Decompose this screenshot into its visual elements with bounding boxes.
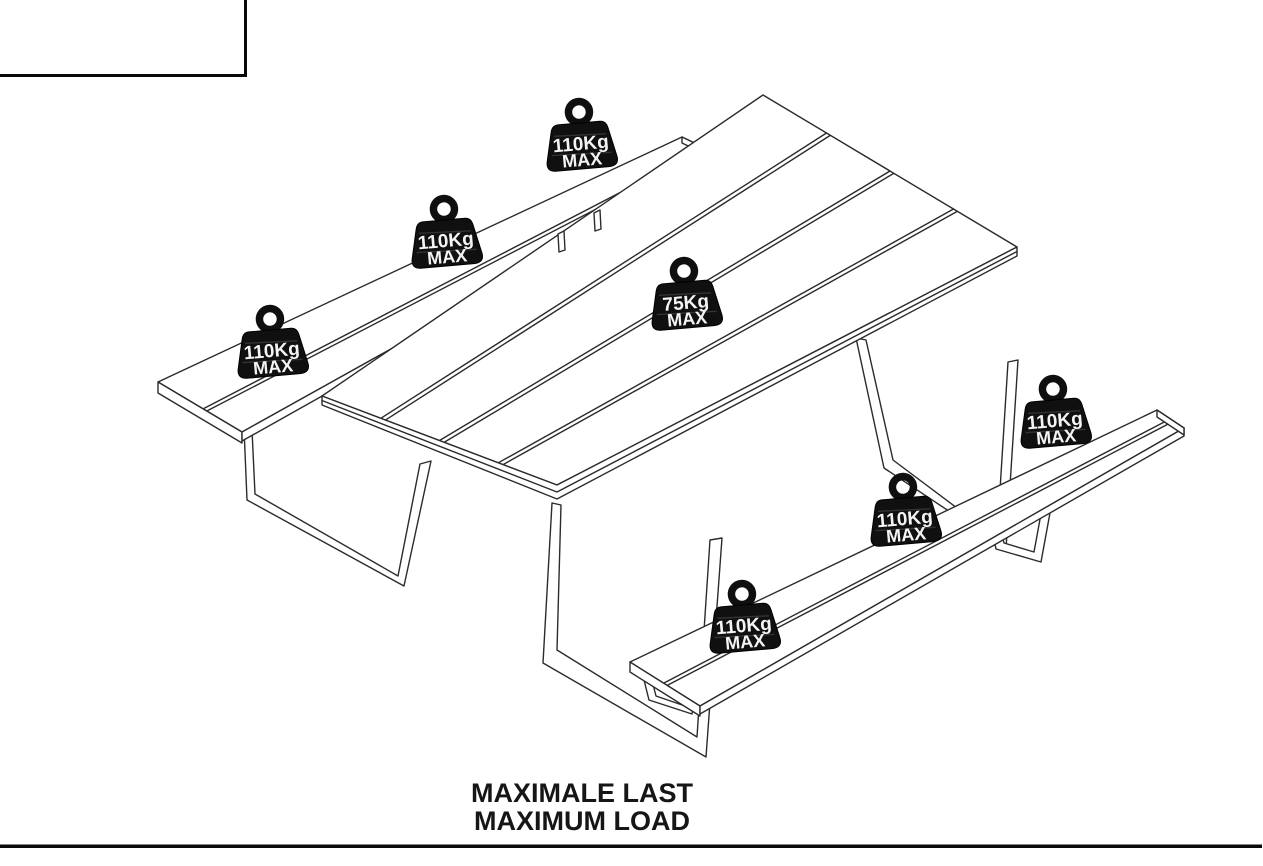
weight-ring-icon xyxy=(892,476,915,499)
weight-ring-icon xyxy=(731,583,754,606)
table-front-leg xyxy=(543,503,722,757)
right-bench-front-band xyxy=(700,428,1184,714)
weight-max-label: MAX xyxy=(561,148,603,171)
max-weight-badge-left-bench-outer: 110Kg MAX xyxy=(542,99,618,173)
max-weight-badge-right-bench-middle: 110Kg MAX xyxy=(866,474,942,548)
weight-ring-icon xyxy=(433,198,456,221)
left-bench-leg xyxy=(244,428,431,586)
title-block-corner xyxy=(0,0,247,76)
weight-ring-icon xyxy=(1042,378,1065,401)
weight-ring-icon xyxy=(568,101,591,124)
weight-max-label: MAX xyxy=(724,630,766,653)
caption-line-1: MAXIMALE LAST xyxy=(471,778,693,808)
weight-max-label: MAX xyxy=(666,307,708,330)
max-weight-badge-right-bench-far: 110Kg MAX xyxy=(1016,376,1092,450)
weight-max-label: MAX xyxy=(885,523,927,546)
page-bottom-rule xyxy=(0,845,1262,849)
max-load-diagram: 110Kg MAX 110Kg MAX 110Kg MAX 75Kg MAX 1… xyxy=(0,0,1263,866)
max-weight-badge-left-bench-middle: 110Kg MAX xyxy=(407,196,483,270)
manual-page: 110Kg MAX 110Kg MAX 110Kg MAX 75Kg MAX 1… xyxy=(0,0,1263,866)
weight-ring-icon xyxy=(259,308,282,331)
weight-max-label: MAX xyxy=(426,245,468,268)
weight-max-label: MAX xyxy=(1035,425,1077,448)
weight-max-label: MAX xyxy=(252,355,294,378)
caption-line-2: MAXIMUM LOAD xyxy=(474,806,690,836)
